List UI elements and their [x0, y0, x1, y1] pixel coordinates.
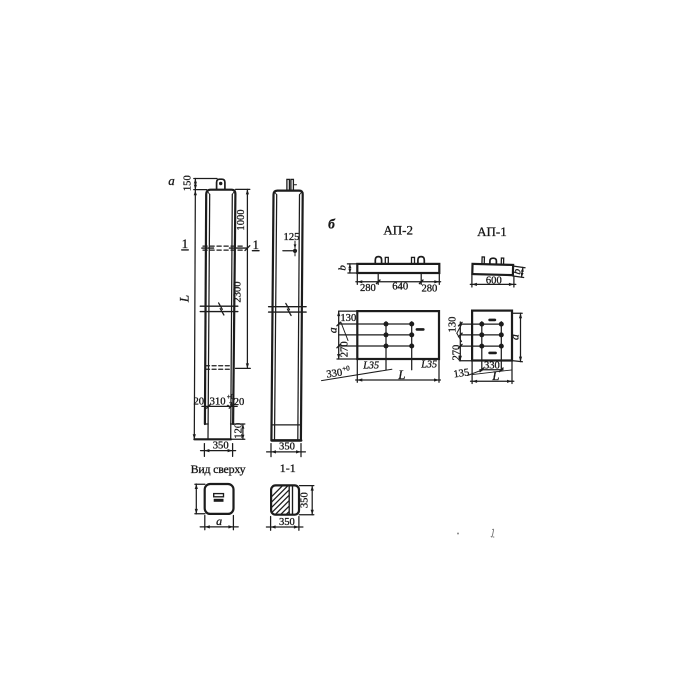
svg-text:2300: 2300	[233, 281, 244, 302]
svg-text:135: 135	[453, 367, 470, 380]
svg-text:280: 280	[360, 283, 376, 294]
svg-text:280: 280	[421, 283, 437, 294]
svg-text:L: L	[491, 368, 499, 383]
svg-text:350: 350	[279, 442, 295, 453]
svg-text:1000: 1000	[236, 209, 247, 230]
svg-text:a: a	[510, 334, 522, 340]
svg-text:a: a	[327, 327, 339, 333]
svg-text:125: 125	[284, 232, 300, 243]
svg-text:640: 640	[392, 282, 408, 293]
svg-text:L: L	[176, 295, 191, 303]
svg-text:350: 350	[299, 492, 310, 508]
svg-text:b: b	[336, 265, 348, 271]
svg-text:130: 130	[340, 313, 356, 324]
svg-text:АП-1: АП-1	[477, 224, 507, 239]
svg-text:270: 270	[340, 341, 351, 357]
svg-text:1: 1	[253, 238, 259, 252]
svg-text:130: 130	[448, 317, 459, 333]
svg-text:L35: L35	[362, 361, 379, 372]
svg-text:L: L	[397, 367, 405, 382]
svg-text:270: 270	[452, 345, 463, 361]
svg-text:L35: L35	[420, 360, 437, 371]
svg-text:1-1: 1-1	[280, 461, 296, 475]
svg-text:350: 350	[213, 440, 229, 451]
svg-text:АП-2: АП-2	[383, 222, 413, 237]
svg-text:600: 600	[486, 275, 502, 286]
svg-text:350: 350	[279, 517, 295, 528]
svg-text:1: 1	[182, 237, 188, 251]
svg-text:120: 120	[233, 423, 244, 439]
svg-text:Вид сверху: Вид сверху	[191, 462, 246, 476]
svg-text:150: 150	[183, 175, 194, 191]
svg-text:a: a	[168, 173, 175, 188]
svg-text:a: a	[216, 514, 222, 528]
